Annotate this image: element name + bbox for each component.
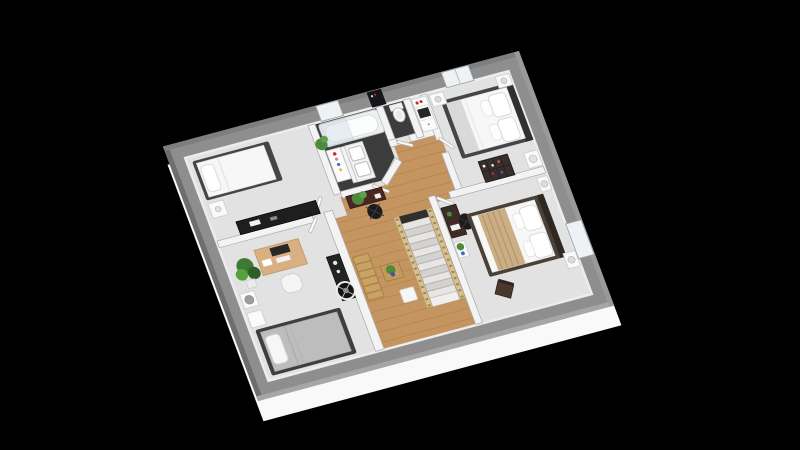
floor-plan-stage (0, 0, 800, 450)
floor-plan-render (0, 0, 800, 450)
